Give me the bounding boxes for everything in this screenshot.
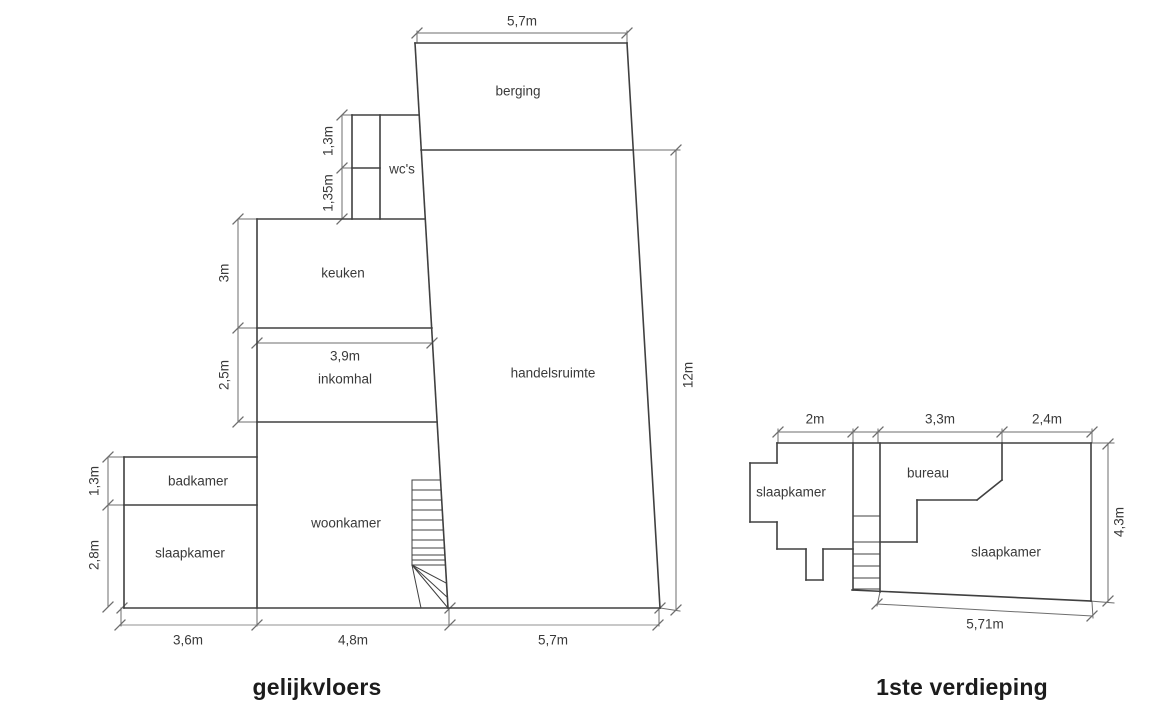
- 1ste-verdieping-wall: [977, 480, 1002, 500]
- gelijkvloers-dim-label-2-5m: 2,5m: [217, 360, 232, 390]
- gelijkvloers-room-label-handelsruimte: handelsruimte: [511, 366, 596, 381]
- gelijkvloers-dim-label-2-8m: 2,8m: [87, 540, 102, 570]
- 1ste-verdieping-room-label-slaapkamer: slaapkamer: [971, 545, 1041, 560]
- 1ste-verdieping-room-label-bureau: bureau: [907, 466, 949, 481]
- gelijkvloers-room-label-badkamer: badkamer: [168, 474, 229, 489]
- gelijkvloers-dim-label-5-7m: 5,7m: [538, 633, 568, 648]
- plan-title-gelijkvloers: gelijkvloers: [253, 674, 382, 701]
- gelijkvloers-wall: [627, 43, 660, 608]
- floor-plan-canvas: bergingwc'skeukeninkomhalhandelsruimteba…: [0, 0, 1152, 727]
- floor-plan-svg: bergingwc'skeukeninkomhalhandelsruimteba…: [0, 0, 1152, 727]
- gelijkvloers-dim-label-4-8m: 4,8m: [338, 633, 368, 648]
- 1ste-verdieping-dim-label-2-4m: 2,4m: [1032, 412, 1062, 427]
- gelijkvloers-room-label-berging: berging: [495, 84, 540, 99]
- 1ste-verdieping-dim-label-2m: 2m: [806, 412, 825, 427]
- gelijkvloers-room-label-wc-s: wc's: [388, 162, 415, 177]
- gelijkvloers-dim-label-3-6m: 3,6m: [173, 633, 203, 648]
- gelijkvloers-room-label-inkomhal: inkomhal: [318, 372, 372, 387]
- gelijkvloers-dim-label-12m: 12m: [681, 362, 696, 388]
- 1ste-verdieping-dim-label-4-3m: 4,3m: [1112, 507, 1127, 537]
- 1ste-verdieping-extension-line: [1090, 601, 1114, 603]
- plan-title-1ste-verdieping: 1ste verdieping: [876, 674, 1048, 701]
- 1ste-verdieping-room-label-slaapkamer: slaapkamer: [756, 485, 826, 500]
- 1ste-verdieping-dimension-line: [877, 604, 1092, 616]
- gelijkvloers-dim-label-5-7m: 5,7m: [507, 14, 537, 29]
- gelijkvloers-dim-label-1-3m: 1,3m: [321, 126, 336, 156]
- gelijkvloers-dim-label-1-35m: 1,35m: [321, 174, 336, 212]
- 1ste-verdieping-dim-label-5-71m: 5,71m: [966, 617, 1004, 632]
- 1ste-verdieping-dim-label-3-3m: 3,3m: [925, 412, 955, 427]
- gelijkvloers-wall: [415, 43, 448, 608]
- gelijkvloers-room-label-woonkamer: woonkamer: [310, 516, 381, 531]
- gelijkvloers-dim-label-3m: 3m: [217, 264, 232, 283]
- 1ste-verdieping-wall: [852, 590, 1091, 601]
- gelijkvloers-room-label-keuken: keuken: [321, 266, 365, 281]
- gelijkvloers-dim-label-3-9m: 3,9m: [330, 349, 360, 364]
- gelijkvloers-dim-label-1-3m: 1,3m: [87, 466, 102, 496]
- gelijkvloers-stair-line: [412, 565, 448, 608]
- gelijkvloers-room-label-slaapkamer: slaapkamer: [155, 546, 225, 561]
